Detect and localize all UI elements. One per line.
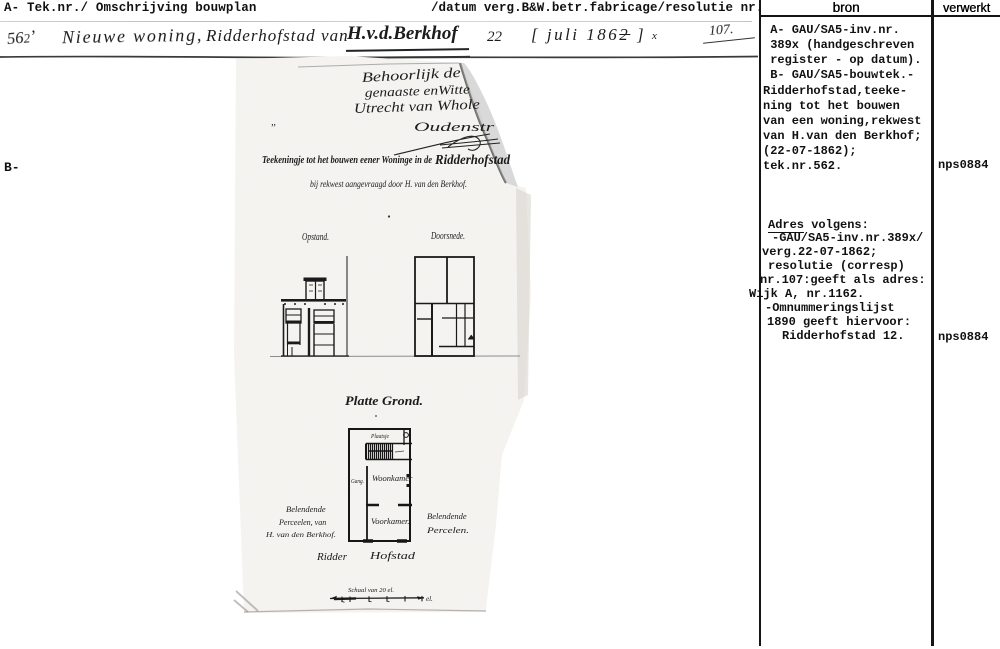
svg-text:Ridder: Ridder	[316, 551, 348, 563]
svg-text:Oudenstr: Oudenstr	[414, 119, 496, 134]
svg-text:H. van den Berkhof.: H. van den Berkhof.	[265, 530, 336, 539]
svg-text:’’: ’’	[270, 123, 276, 134]
svg-text:Perceelen, van: Perceelen, van	[278, 518, 326, 527]
svg-text:el.: el.	[426, 595, 433, 603]
svg-text:Platte Grond.: Platte Grond.	[345, 393, 423, 408]
svg-text:Ridderhofstad: Ridderhofstad	[434, 152, 510, 167]
svg-text:Gang.: Gang.	[351, 478, 364, 485]
svg-text:Opstand.: Opstand.	[302, 232, 329, 243]
svg-text:Percelen.: Percelen.	[426, 525, 469, 535]
svg-text:Belendende: Belendende	[427, 511, 467, 521]
svg-text:Woonkamer: Woonkamer	[372, 473, 413, 483]
svg-text:Teekeningje tot het bouwen een: Teekeningje tot het bouwen eener Woninge…	[262, 154, 432, 166]
svg-text:Plaatsje: Plaatsje	[370, 433, 389, 440]
svg-text:bij rekwest aangevraagd door H: bij rekwest aangevraagd door H. van den …	[310, 179, 467, 189]
svg-text:Doorsnede.: Doorsnede.	[430, 231, 465, 242]
svg-text:Voorkamer.: Voorkamer.	[371, 516, 409, 526]
svg-text:Schaal van 20 el.: Schaal van 20 el.	[348, 587, 394, 594]
svg-text:Hofstad: Hofstad	[369, 550, 416, 562]
svg-text:Belendende: Belendende	[286, 504, 326, 514]
